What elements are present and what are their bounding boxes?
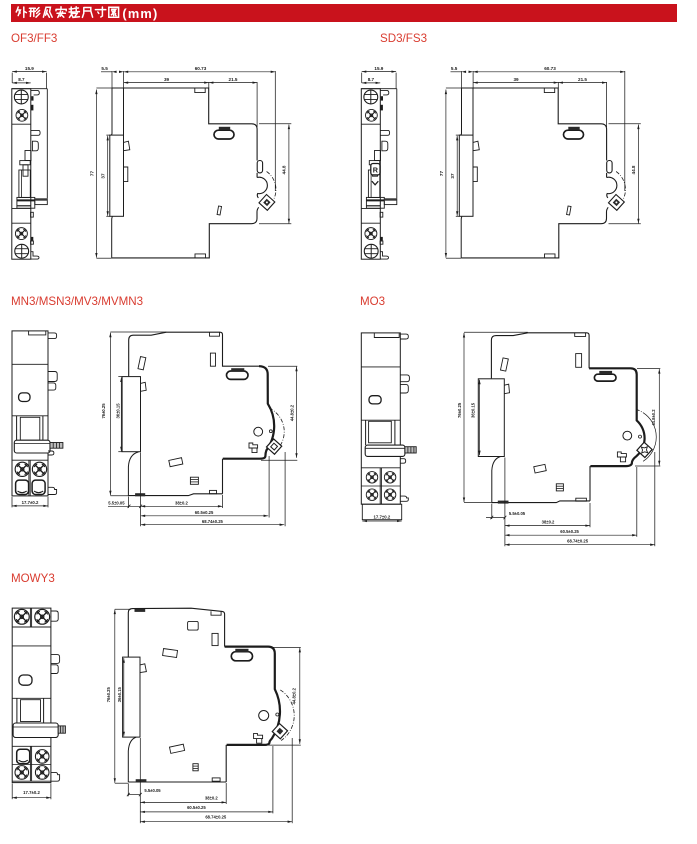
svg-text:17.7±0.2: 17.7±0.2 [22, 500, 39, 505]
svg-text:8.7: 8.7 [18, 77, 25, 82]
svg-text:60.5±0.25: 60.5±0.25 [187, 805, 206, 810]
svg-text:68.74±0.25: 68.74±0.25 [205, 814, 227, 819]
svg-text:68.74±0.25: 68.74±0.25 [202, 519, 224, 524]
svg-text:5.5: 5.5 [101, 66, 108, 71]
svg-text:60.73: 60.73 [195, 66, 207, 71]
svg-text:36±0.15: 36±0.15 [115, 403, 120, 419]
svg-text:38±0.2: 38±0.2 [175, 501, 188, 506]
svg-text:44.8±0.2: 44.8±0.2 [290, 404, 295, 421]
svg-text:17.7±0.2: 17.7±0.2 [23, 790, 40, 795]
svg-text:76±0.25: 76±0.25 [106, 686, 111, 702]
svg-text:44.8±0.2: 44.8±0.2 [651, 409, 656, 426]
svg-text:17.7±0.2: 17.7±0.2 [374, 515, 391, 520]
svg-text:MO3: MO3 [360, 295, 385, 308]
svg-text:5.5±0.05: 5.5±0.05 [144, 788, 161, 793]
svg-text:MN3/MSN3/MV3/MVMN3: MN3/MSN3/MV3/MVMN3 [11, 295, 143, 308]
svg-text:68.74±0.25: 68.74±0.25 [567, 539, 589, 544]
svg-text:38±0.2: 38±0.2 [542, 519, 555, 524]
svg-text:R: R [373, 165, 379, 174]
svg-text:76±0.25: 76±0.25 [457, 402, 462, 418]
svg-text:37: 37 [101, 173, 106, 179]
svg-text:OF3/FF3: OF3/FF3 [11, 32, 57, 45]
svg-text:36±0.15: 36±0.15 [471, 402, 476, 418]
svg-text:60.5±0.25: 60.5±0.25 [195, 510, 214, 515]
svg-text:5.5±0.05: 5.5±0.05 [108, 501, 125, 506]
svg-text:(mm): (mm) [122, 6, 158, 21]
svg-text:39: 39 [164, 77, 170, 82]
svg-text:5.5±0.05: 5.5±0.05 [509, 511, 526, 516]
svg-text:15.9: 15.9 [25, 66, 34, 71]
svg-text:60.5±0.25: 60.5±0.25 [560, 529, 579, 534]
svg-text:SD3/FS3: SD3/FS3 [380, 32, 427, 45]
svg-text:21.5: 21.5 [229, 77, 238, 82]
svg-text:44.8±0.2: 44.8±0.2 [291, 687, 296, 704]
svg-text:76±0.25: 76±0.25 [101, 403, 106, 419]
svg-text:44.8: 44.8 [282, 165, 287, 174]
svg-text:38±0.2: 38±0.2 [205, 795, 218, 800]
svg-text:36±0.15: 36±0.15 [117, 686, 122, 702]
svg-text:MOWY3: MOWY3 [11, 572, 55, 585]
svg-text:77: 77 [89, 171, 94, 177]
